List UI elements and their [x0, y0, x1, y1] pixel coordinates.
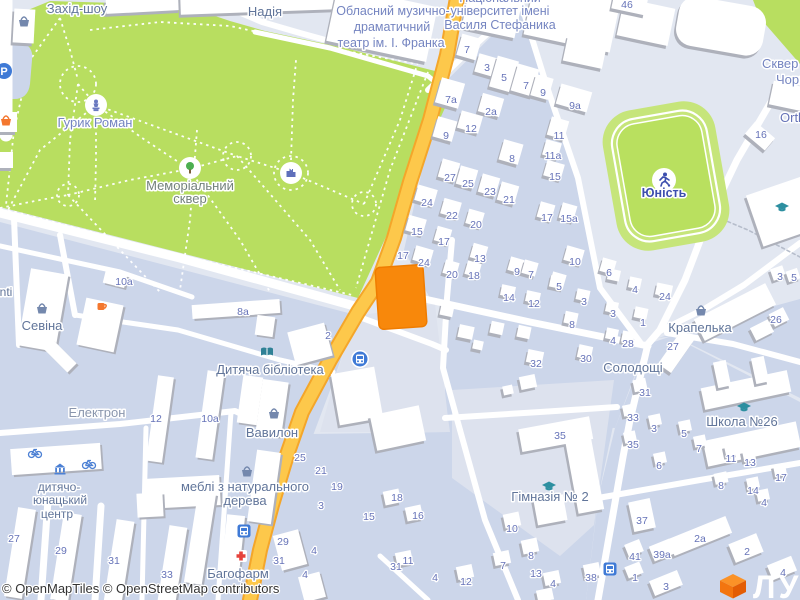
svg-text:39a: 39a: [653, 549, 671, 561]
svg-text:12: 12: [150, 413, 162, 425]
svg-text:12: 12: [460, 576, 472, 588]
svg-text:Гурик Роман: Гурик Роман: [58, 115, 133, 130]
svg-text:29: 29: [55, 545, 67, 557]
svg-text:4: 4: [761, 497, 767, 509]
svg-text:3: 3: [610, 308, 616, 320]
svg-text:5: 5: [501, 72, 507, 84]
svg-text:11: 11: [403, 555, 414, 567]
svg-text:Багофарм: Багофарм: [207, 566, 269, 581]
svg-text:nti: nti: [0, 285, 12, 299]
svg-text:31: 31: [108, 555, 120, 567]
svg-text:Гімназія № 2: Гімназія № 2: [511, 489, 588, 504]
svg-text:23: 23: [484, 186, 496, 198]
svg-text:11: 11: [554, 130, 565, 142]
svg-text:дерева: дерева: [223, 493, 267, 508]
svg-text:19: 19: [331, 481, 343, 493]
svg-text:7: 7: [500, 560, 506, 572]
svg-text:38: 38: [585, 572, 597, 584]
svg-text:15: 15: [363, 511, 375, 523]
svg-text:дитячо-: дитячо-: [38, 480, 81, 494]
svg-text:2: 2: [744, 546, 750, 558]
svg-text:33: 33: [627, 412, 639, 424]
svg-text:27: 27: [8, 533, 20, 545]
svg-text:10a: 10a: [201, 413, 219, 425]
svg-text:16: 16: [755, 129, 767, 141]
svg-text:Вавилон: Вавилон: [246, 425, 298, 440]
svg-text:24: 24: [659, 291, 671, 303]
svg-text:31: 31: [273, 555, 285, 567]
svg-text:1: 1: [640, 317, 646, 329]
svg-text:10a: 10a: [115, 276, 133, 288]
svg-text:9: 9: [514, 266, 520, 278]
svg-text:Надія: Надія: [248, 4, 282, 19]
svg-text:Захід-шоу: Захід-шоу: [47, 1, 108, 16]
svg-text:27: 27: [667, 341, 679, 353]
svg-text:Orth: Orth: [780, 110, 800, 125]
svg-text:4: 4: [632, 284, 638, 296]
svg-text:Солодощі: Солодощі: [603, 360, 663, 375]
svg-text:Обласний музично-: Обласний музично-: [336, 4, 449, 18]
svg-text:8: 8: [509, 153, 515, 165]
svg-text:21: 21: [315, 465, 327, 477]
svg-text:8a: 8a: [237, 306, 249, 318]
svg-text:35: 35: [627, 439, 639, 451]
svg-text:20: 20: [470, 219, 482, 231]
svg-text:3: 3: [651, 423, 657, 435]
svg-text:24: 24: [421, 197, 433, 209]
svg-text:Севіна: Севіна: [22, 318, 64, 333]
svg-text:Чорн: Чорн: [776, 72, 800, 87]
svg-text:3: 3: [581, 296, 587, 308]
svg-text:33: 33: [161, 569, 173, 581]
svg-text:Сквер З: Сквер З: [762, 56, 800, 71]
svg-text:меблі з натурального: меблі з натурального: [181, 479, 309, 494]
svg-text:26: 26: [770, 314, 782, 326]
svg-text:12: 12: [528, 298, 540, 310]
svg-text:сквер: сквер: [173, 191, 206, 206]
svg-text:5: 5: [791, 272, 797, 284]
svg-text:8: 8: [528, 550, 534, 562]
svg-text:13: 13: [530, 568, 542, 580]
svg-text:13: 13: [744, 457, 756, 469]
svg-text:31: 31: [639, 387, 651, 399]
svg-text:4: 4: [550, 578, 556, 590]
svg-text:4: 4: [302, 569, 308, 581]
svg-text:8: 8: [718, 480, 724, 492]
svg-text:9a: 9a: [569, 100, 581, 112]
svg-text:37: 37: [636, 515, 648, 527]
svg-text:11a: 11a: [545, 150, 562, 162]
svg-text:41: 41: [629, 551, 641, 563]
svg-text:Василя Стефаника: Василя Стефаника: [444, 18, 555, 32]
svg-text:4: 4: [311, 545, 317, 557]
svg-text:університет імені: університет імені: [451, 4, 550, 18]
svg-text:8: 8: [569, 319, 575, 331]
svg-text:© OpenMapTiles © OpenStreetMap: © OpenMapTiles © OpenStreetMap contribut…: [2, 581, 280, 596]
svg-text:30: 30: [580, 353, 592, 365]
svg-text:22: 22: [446, 210, 458, 222]
svg-text:центр: центр: [41, 507, 74, 521]
svg-text:32: 32: [530, 358, 542, 370]
svg-text:21: 21: [503, 194, 515, 206]
svg-text:18: 18: [468, 270, 480, 282]
svg-text:5: 5: [556, 281, 562, 293]
svg-text:5: 5: [681, 428, 687, 440]
svg-text:24: 24: [418, 257, 430, 269]
svg-text:драматичний: драматичний: [354, 20, 431, 34]
svg-text:15: 15: [411, 226, 423, 238]
svg-text:28: 28: [622, 338, 634, 350]
svg-text:29: 29: [277, 536, 289, 548]
svg-text:театр ім. І. Франка: театр ім. І. Франка: [337, 36, 444, 50]
svg-text:27: 27: [444, 172, 456, 184]
svg-text:1: 1: [632, 572, 638, 584]
svg-text:20: 20: [446, 269, 458, 281]
svg-text:Дитяча бібліотека: Дитяча бібліотека: [216, 362, 324, 377]
svg-text:17: 17: [775, 472, 787, 484]
svg-text:14: 14: [503, 292, 515, 304]
svg-text:25: 25: [462, 178, 474, 190]
svg-text:ЛУН: ЛУН: [753, 569, 800, 600]
svg-text:16: 16: [412, 510, 424, 522]
svg-text:7: 7: [528, 269, 534, 281]
svg-text:7: 7: [696, 443, 702, 455]
svg-text:17: 17: [397, 250, 409, 262]
svg-text:Юність: Юність: [642, 186, 687, 200]
svg-text:14: 14: [747, 485, 759, 497]
svg-text:3: 3: [484, 62, 490, 74]
svg-text:10: 10: [506, 523, 518, 535]
svg-text:7a: 7a: [445, 94, 457, 106]
svg-text:2a: 2a: [694, 533, 706, 545]
svg-text:7: 7: [523, 80, 529, 92]
svg-text:13: 13: [474, 253, 486, 265]
svg-text:15: 15: [549, 171, 561, 183]
svg-text:Школа №26: Школа №26: [706, 414, 778, 429]
svg-text:3: 3: [663, 581, 669, 593]
svg-text:46: 46: [621, 0, 633, 11]
svg-text:25: 25: [294, 452, 306, 464]
svg-text:11: 11: [726, 453, 737, 465]
svg-text:9: 9: [443, 130, 449, 142]
svg-text:юнацький: юнацький: [33, 493, 87, 507]
svg-text:4: 4: [432, 572, 438, 584]
svg-text:3: 3: [318, 500, 324, 512]
svg-text:6: 6: [606, 267, 612, 279]
svg-text:Електрон: Електрон: [69, 405, 126, 420]
svg-text:10: 10: [569, 256, 581, 268]
svg-text:6: 6: [656, 460, 662, 472]
svg-text:2a: 2a: [485, 106, 497, 118]
svg-text:7: 7: [464, 44, 470, 56]
svg-text:12: 12: [465, 123, 477, 135]
svg-text:15a: 15a: [560, 213, 578, 225]
svg-text:4: 4: [610, 335, 616, 347]
svg-text:9: 9: [540, 87, 546, 99]
svg-text:2: 2: [325, 330, 331, 342]
svg-text:17: 17: [541, 212, 553, 224]
svg-text:P: P: [0, 66, 7, 78]
svg-text:3: 3: [777, 271, 783, 283]
svg-text:18: 18: [391, 492, 403, 504]
svg-text:35: 35: [554, 430, 566, 442]
svg-text:31: 31: [390, 561, 402, 573]
svg-text:Крапелька: Крапелька: [668, 320, 732, 335]
svg-text:17: 17: [438, 236, 450, 248]
